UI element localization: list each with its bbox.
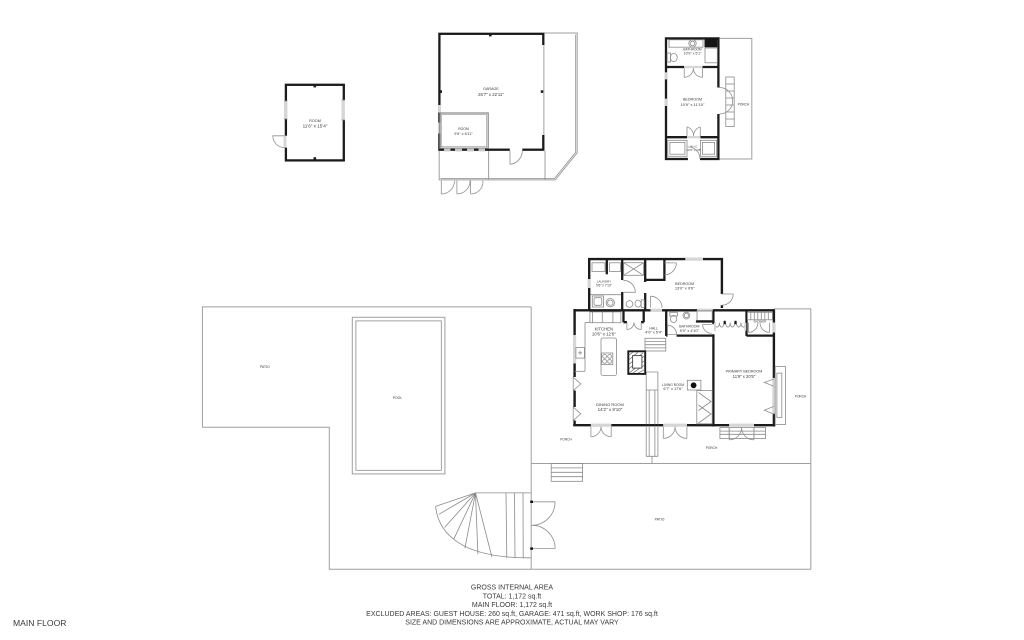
svg-text:11'6" x 15'4": 11'6" x 15'4" (303, 123, 328, 128)
svg-text:PATIO: PATIO (260, 365, 270, 369)
svg-text:PORCH: PORCH (795, 395, 807, 399)
svg-text:11'9" x 20'5": 11'9" x 20'5" (733, 374, 756, 379)
svg-text:GARAGE: GARAGE (483, 87, 499, 91)
svg-text:PORCH: PORCH (706, 446, 718, 450)
svg-text:MAIN FLOOR: MAIN FLOOR (13, 618, 66, 628)
svg-text:10'6" x 12'6": 10'6" x 12'6" (592, 332, 616, 337)
svg-text:26'7" x 22'11": 26'7" x 22'11" (478, 92, 504, 97)
svg-text:GROSS INTERNAL AREA: GROSS INTERNAL AREA (471, 585, 554, 592)
svg-text:ROOM: ROOM (458, 127, 469, 131)
svg-text:PORCH: PORCH (738, 103, 750, 107)
svg-text:9'0" x 4'10": 9'0" x 4'10" (680, 328, 700, 333)
svg-text:10'9" x 5'1": 10'9" x 5'1" (684, 52, 702, 56)
svg-text:PRIMARY BEDROOM: PRIMARY BEDROOM (726, 370, 763, 374)
svg-text:10'9" x 11'10": 10'9" x 11'10" (681, 102, 705, 107)
svg-text:14'2" x 8'10": 14'2" x 8'10" (598, 407, 623, 412)
svg-text:13'0" x 9'6": 13'0" x 9'6" (675, 286, 695, 291)
svg-text:PORCH: PORCH (560, 438, 572, 442)
svg-text:6'7" x 17'6": 6'7" x 17'6" (663, 386, 683, 391)
svg-text:5'6" x 7'10": 5'6" x 7'10" (596, 284, 612, 288)
svg-text:4'0" x 5'4": 4'0" x 5'4" (645, 330, 663, 335)
svg-text:TOTAL: 1,172 sq.ft: TOTAL: 1,172 sq.ft (483, 594, 542, 601)
svg-text:9'6" x 6'11": 9'6" x 6'11" (454, 132, 473, 136)
svg-text:BEDROOM: BEDROOM (683, 97, 702, 101)
svg-text:ROOM: ROOM (309, 119, 321, 123)
svg-text:POOL: POOL (393, 396, 403, 400)
svg-text:PATIO: PATIO (655, 517, 665, 521)
svg-text:SIZE AND DIMENSIONS ARE APPROX: SIZE AND DIMENSIONS ARE APPROXIMATE, ACT… (405, 619, 619, 626)
svg-text:MAIN FLOOR: 1,172 sq.ft: MAIN FLOOR: 1,172 sq.ft (472, 602, 552, 609)
svg-text:EXCLUDED AREAS: GUEST HOUSE: 2: EXCLUDED AREAS: GUEST HOUSE: 260 sq.ft, … (366, 611, 658, 618)
